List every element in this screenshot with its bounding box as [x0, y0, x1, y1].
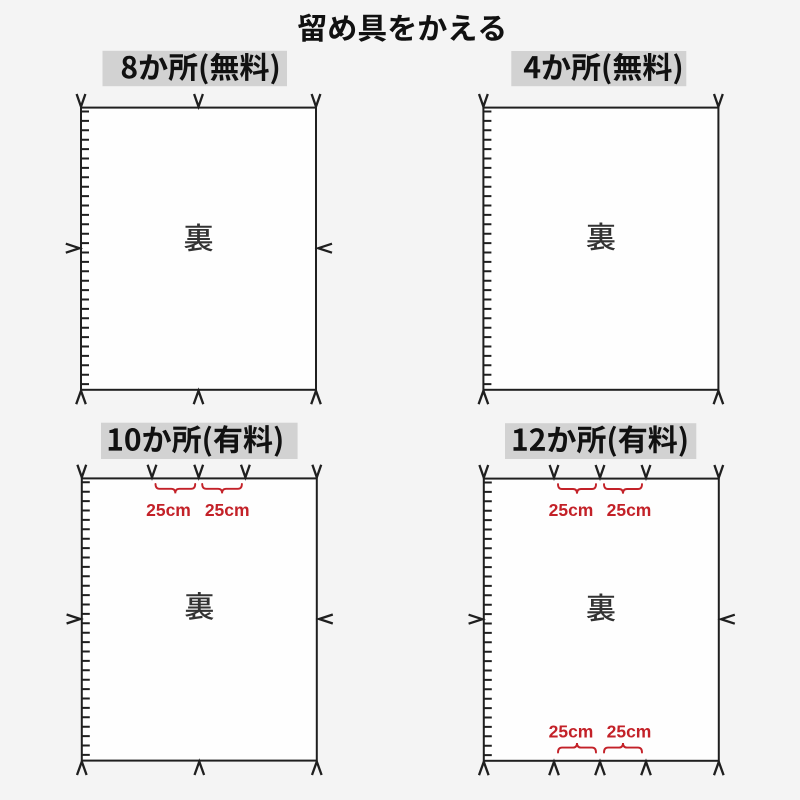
svg-text:25cm: 25cm [205, 500, 250, 520]
svg-text:25cm: 25cm [607, 722, 652, 742]
svg-text:25cm: 25cm [146, 500, 191, 520]
svg-text:25cm: 25cm [549, 722, 594, 742]
svg-text:25cm: 25cm [607, 500, 652, 520]
svg-text:25cm: 25cm [549, 500, 594, 520]
